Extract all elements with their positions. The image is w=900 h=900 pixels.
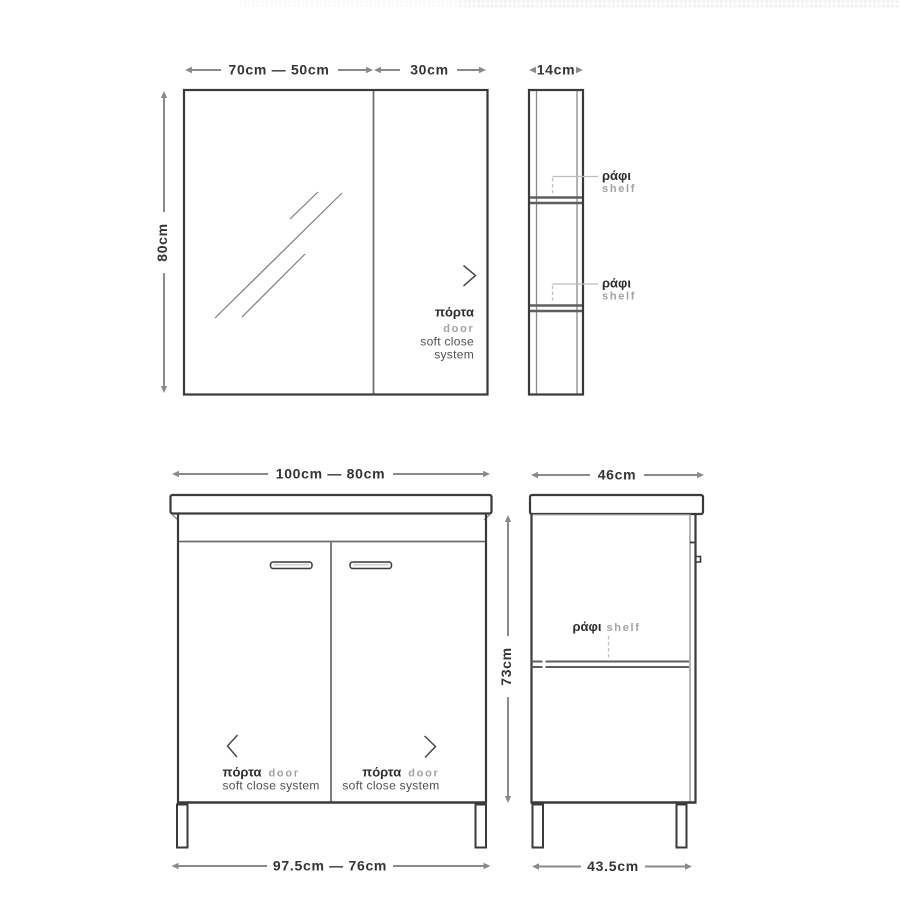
svg-text:46cm: 46cm	[598, 467, 637, 483]
svg-text:soft close: soft close	[420, 335, 474, 349]
svg-text:14cm: 14cm	[537, 62, 576, 78]
svg-text:100cm — 80cm: 100cm — 80cm	[276, 466, 386, 482]
svg-text:ράφιshelf: ράφιshelf	[573, 619, 641, 634]
svg-text:πόρτα: πόρτα	[435, 305, 474, 320]
svg-text:soft close system: soft close system	[342, 779, 439, 793]
svg-text:ράφι: ράφι	[602, 168, 631, 183]
svg-text:ράφι: ράφι	[602, 276, 631, 291]
svg-text:πόρταdoor: πόρταdoor	[362, 765, 439, 780]
svg-text:70cm — 50cm: 70cm — 50cm	[228, 62, 329, 78]
svg-text:43.5cm: 43.5cm	[587, 858, 639, 874]
svg-text:30cm: 30cm	[410, 62, 449, 78]
svg-text:πόρταdoor: πόρταdoor	[223, 765, 300, 780]
svg-text:system: system	[434, 348, 474, 362]
svg-text:80cm: 80cm	[154, 223, 170, 262]
svg-text:shelf: shelf	[602, 291, 636, 303]
svg-text:door: door	[443, 323, 474, 335]
svg-text:73cm: 73cm	[498, 647, 514, 686]
svg-text:shelf: shelf	[602, 183, 636, 195]
svg-text:soft close system: soft close system	[223, 779, 320, 793]
svg-text:97.5cm — 76cm: 97.5cm — 76cm	[273, 858, 387, 874]
